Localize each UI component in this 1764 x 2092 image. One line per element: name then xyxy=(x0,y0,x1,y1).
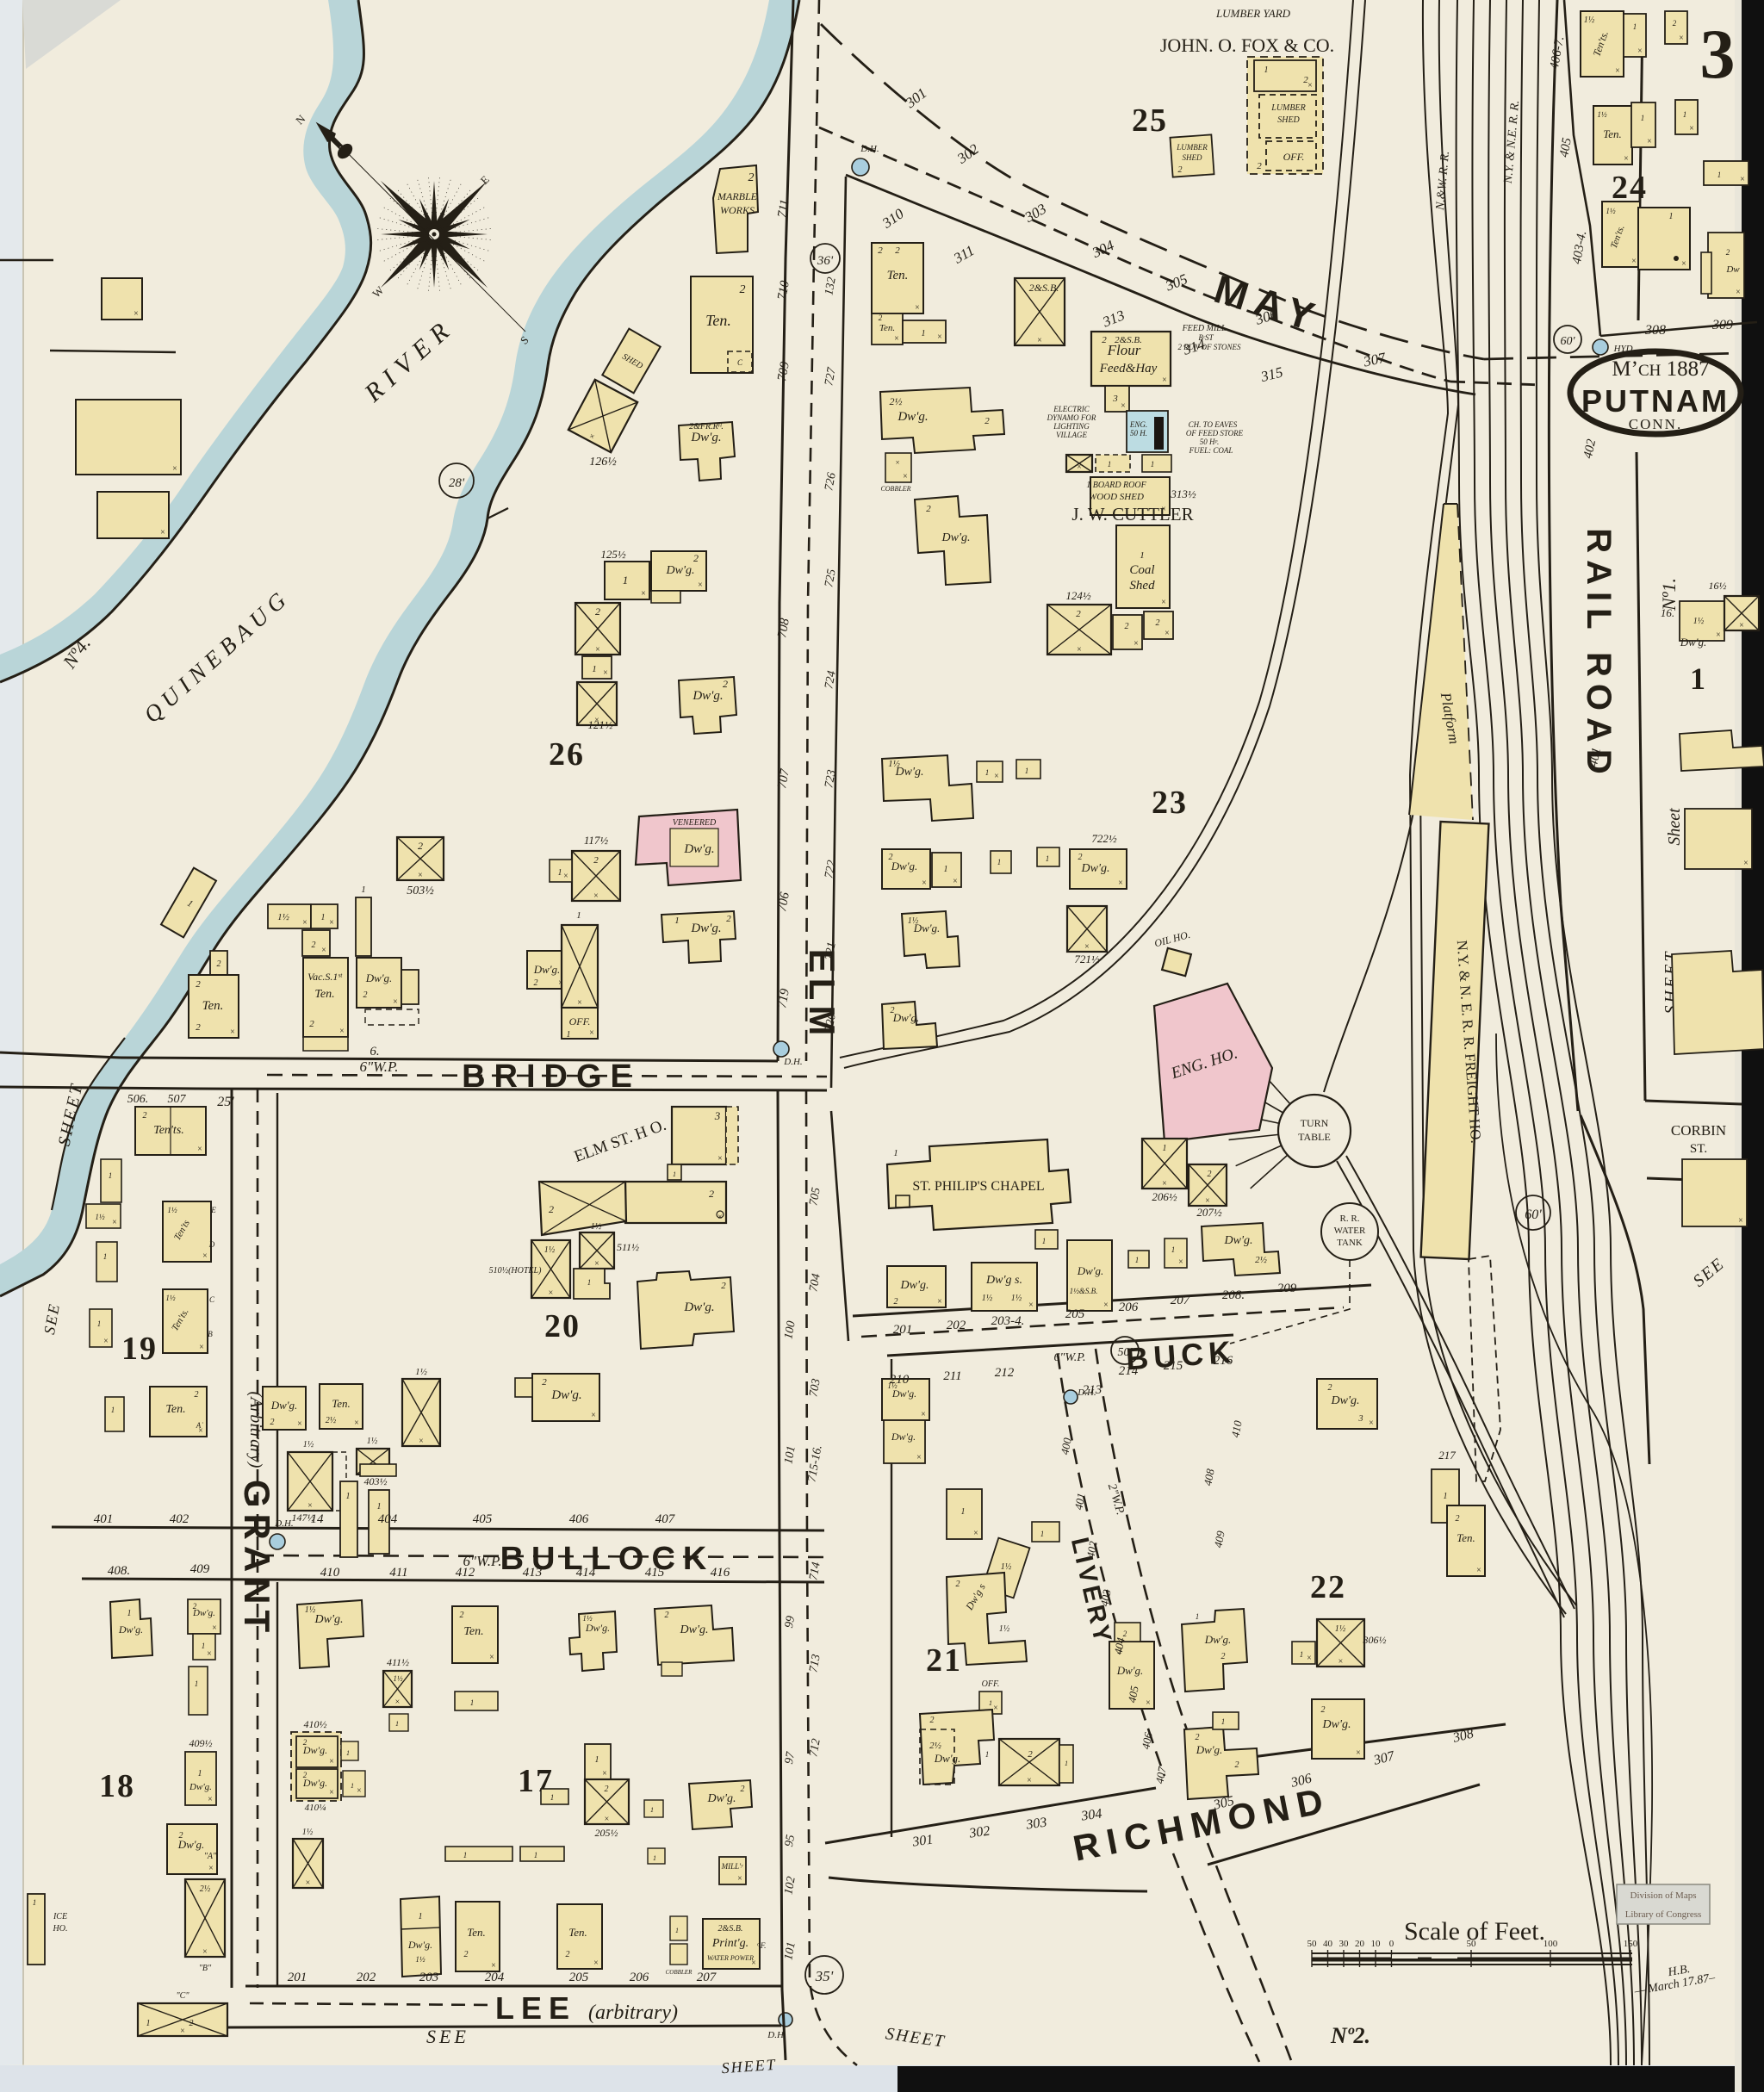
svg-text:2: 2 xyxy=(195,1390,199,1400)
svg-text:×: × xyxy=(895,458,900,467)
svg-text:1: 1 xyxy=(463,1851,468,1859)
svg-text:1: 1 xyxy=(592,664,597,674)
svg-text:×: × xyxy=(717,1154,723,1164)
svg-text:1½: 1½ xyxy=(888,759,900,769)
svg-text:×: × xyxy=(994,772,999,781)
svg-text:×: × xyxy=(1027,1776,1032,1785)
svg-text:1½: 1½ xyxy=(95,1213,105,1221)
svg-text:150: 150 xyxy=(1624,1939,1638,1949)
svg-text:Shed: Shed xyxy=(1129,579,1155,593)
svg-text:×: × xyxy=(230,1027,235,1037)
svg-text:×: × xyxy=(297,1419,302,1429)
svg-text:SEE: SEE xyxy=(426,2026,469,2047)
svg-text:2: 2 xyxy=(460,1611,464,1620)
svg-text:301: 301 xyxy=(910,1832,934,1849)
svg-text:Nº2.: Nº2. xyxy=(1330,2023,1370,2048)
svg-text:1: 1 xyxy=(395,1720,399,1728)
svg-text:21: 21 xyxy=(926,1642,962,1679)
svg-text:Ten.: Ten. xyxy=(165,1403,185,1416)
svg-text:1: 1 xyxy=(146,2019,151,2028)
svg-text:303: 303 xyxy=(1024,1815,1047,1832)
svg-text:Dw'g.: Dw'g. xyxy=(690,431,721,444)
svg-text:1: 1 xyxy=(997,858,1002,866)
svg-text:×: × xyxy=(1205,1196,1210,1206)
svg-text:MARBLE: MARBLE xyxy=(717,190,758,202)
svg-text:2: 2 xyxy=(1123,1630,1127,1638)
svg-text:721½: 721½ xyxy=(1074,953,1100,965)
svg-text:×: × xyxy=(1615,66,1620,76)
svg-text:Dw'g.: Dw'g. xyxy=(897,410,928,424)
svg-text:×: × xyxy=(595,645,600,655)
svg-text:2: 2 xyxy=(1125,622,1129,631)
svg-text:×: × xyxy=(593,891,599,901)
svg-text:BRIDGE: BRIDGE xyxy=(462,1058,641,1095)
svg-text:30: 30 xyxy=(1339,1939,1350,1949)
svg-text:×: × xyxy=(306,1878,311,1888)
svg-text:2: 2 xyxy=(926,504,931,514)
svg-text:Dw'g.: Dw'g. xyxy=(690,922,721,935)
svg-text:2: 2 xyxy=(894,1297,898,1307)
svg-text:×: × xyxy=(577,998,582,1008)
svg-text:2&S.B.: 2&S.B. xyxy=(1115,335,1142,345)
svg-text:×: × xyxy=(1118,878,1123,888)
svg-text:1½: 1½ xyxy=(1606,207,1616,215)
svg-text:SHED: SHED xyxy=(1183,153,1202,162)
svg-text:×: × xyxy=(1631,257,1637,266)
svg-text:×: × xyxy=(737,1874,742,1884)
svg-text:2: 2 xyxy=(542,1377,547,1387)
svg-text:×: × xyxy=(563,872,568,881)
svg-text:×: × xyxy=(1103,1301,1109,1310)
svg-text:2: 2 xyxy=(1221,1652,1226,1661)
svg-text:Dw'g.: Dw'g. xyxy=(1196,1743,1223,1756)
svg-text:22: 22 xyxy=(1310,1569,1346,1605)
svg-text:36': 36' xyxy=(817,254,834,268)
svg-text:50': 50' xyxy=(1118,1346,1134,1359)
svg-text:Dw'g.: Dw'g. xyxy=(1322,1718,1351,1731)
svg-text:Dw'g.: Dw'g. xyxy=(891,1431,916,1443)
svg-text:×: × xyxy=(641,589,646,599)
svg-text:1: 1 xyxy=(127,1609,132,1618)
svg-text:WORKS: WORKS xyxy=(720,204,755,216)
svg-text:410: 410 xyxy=(320,1566,340,1580)
svg-text:1½: 1½ xyxy=(367,1437,378,1446)
svg-text:Dw'g.: Dw'g. xyxy=(533,963,561,976)
svg-text:2: 2 xyxy=(595,605,600,618)
svg-text:3: 3 xyxy=(1700,15,1736,93)
svg-text:402: 402 xyxy=(170,1512,189,1526)
svg-text:DYNAMO FOR: DYNAMO FOR xyxy=(1047,413,1096,422)
svg-text:1: 1 xyxy=(1633,22,1637,31)
svg-text:414: 414 xyxy=(576,1566,596,1580)
svg-text:1½: 1½ xyxy=(167,1206,177,1214)
svg-text:Ten.: Ten. xyxy=(705,312,731,329)
svg-text:2: 2 xyxy=(1208,1170,1212,1179)
svg-text:411½: 411½ xyxy=(387,1656,409,1668)
svg-text:210: 210 xyxy=(890,1373,910,1387)
svg-text:205: 205 xyxy=(1065,1307,1085,1321)
svg-text:D.H.: D.H. xyxy=(783,1057,802,1067)
svg-text:3: 3 xyxy=(1112,394,1118,404)
svg-text:Ten.: Ten. xyxy=(568,1926,587,1939)
svg-text:Dw'g.: Dw'g. xyxy=(1331,1394,1360,1407)
svg-text:LUMBER: LUMBER xyxy=(1270,103,1305,113)
svg-text:OF FEED STORE: OF FEED STORE xyxy=(1186,429,1244,438)
svg-text:Print'g.: Print'g. xyxy=(711,1937,748,1950)
svg-text:1: 1 xyxy=(109,1171,113,1180)
svg-text:411: 411 xyxy=(389,1566,407,1580)
svg-text:40: 40 xyxy=(1323,1939,1333,1949)
svg-text:J. W. CUTTLER: J. W. CUTTLER xyxy=(1071,504,1193,525)
svg-text:125½: 125½ xyxy=(600,548,626,561)
svg-text:26: 26 xyxy=(549,736,585,773)
svg-text:1: 1 xyxy=(623,574,629,587)
svg-text:ᴼF.: ᴼF. xyxy=(757,1941,767,1950)
svg-text:2: 2 xyxy=(956,1580,960,1589)
svg-text:×: × xyxy=(922,878,927,888)
svg-text:×: × xyxy=(395,1698,401,1707)
svg-text:415: 415 xyxy=(645,1566,665,1580)
svg-text:722½: 722½ xyxy=(1091,832,1117,845)
svg-text:1: 1 xyxy=(550,1793,555,1802)
svg-text:503½: 503½ xyxy=(407,885,434,897)
svg-text:1: 1 xyxy=(1171,1245,1176,1254)
svg-text:Coal: Coal xyxy=(1129,563,1154,577)
svg-text:1½: 1½ xyxy=(1584,16,1595,25)
svg-text:1: 1 xyxy=(985,1750,990,1759)
svg-text:208.: 208. xyxy=(1222,1288,1245,1302)
svg-text:2: 2 xyxy=(748,171,755,184)
svg-text:Dw'g.: Dw'g. xyxy=(1204,1633,1232,1646)
svg-text:2: 2 xyxy=(741,1785,745,1794)
svg-text:2: 2 xyxy=(549,1203,554,1215)
svg-text:1: 1 xyxy=(1065,1760,1068,1767)
svg-text:×: × xyxy=(207,1649,212,1659)
svg-text:Dw'g.: Dw'g. xyxy=(680,1623,709,1636)
svg-text:308: 308 xyxy=(1644,323,1666,338)
svg-text:Dw'g.: Dw'g. xyxy=(683,842,714,856)
svg-text:1: 1 xyxy=(361,885,366,895)
svg-text:Dw'g.: Dw'g. xyxy=(891,860,918,872)
svg-text:"A": "A" xyxy=(204,1852,217,1861)
svg-text:2: 2 xyxy=(143,1111,147,1120)
svg-text:ST.: ST. xyxy=(1690,1142,1707,1156)
svg-text:"B": "B" xyxy=(199,1964,212,1973)
svg-text:×: × xyxy=(302,918,307,928)
svg-text:1½: 1½ xyxy=(303,1440,314,1450)
svg-text:×: × xyxy=(329,918,334,928)
svg-text:206½: 206½ xyxy=(1152,1190,1177,1203)
svg-text:ST. PHILIP'S CHAPEL: ST. PHILIP'S CHAPEL xyxy=(912,1179,1044,1194)
svg-text:1½: 1½ xyxy=(1335,1624,1346,1634)
svg-text:1: 1 xyxy=(587,1278,592,1287)
svg-text:1½: 1½ xyxy=(1597,110,1607,119)
svg-text:×: × xyxy=(602,1769,607,1779)
svg-text:1: 1 xyxy=(1135,1256,1140,1264)
svg-text:201: 201 xyxy=(893,1323,913,1337)
svg-text:217: 217 xyxy=(1438,1449,1456,1462)
svg-text:1½&S.B.: 1½&S.B. xyxy=(1070,1287,1098,1295)
svg-text:2: 2 xyxy=(534,978,538,988)
svg-text:207: 207 xyxy=(1171,1294,1191,1307)
svg-text:1: 1 xyxy=(103,1252,108,1261)
svg-text:407: 407 xyxy=(655,1512,676,1526)
svg-text:Ten.: Ten. xyxy=(314,988,334,1001)
svg-text:1½: 1½ xyxy=(277,912,289,922)
svg-text:406: 406 xyxy=(569,1512,589,1526)
svg-text:Dw'g.: Dw'g. xyxy=(1081,862,1110,875)
svg-text:TABLE: TABLE xyxy=(1298,1131,1331,1143)
svg-text:HO.: HO. xyxy=(53,1924,68,1934)
svg-text:Dw'g.: Dw'g. xyxy=(189,1782,212,1792)
svg-text:SHED: SHED xyxy=(1277,115,1300,125)
svg-text:×: × xyxy=(1339,1657,1344,1667)
svg-text:206: 206 xyxy=(630,1971,649,1984)
svg-text:×: × xyxy=(591,1411,596,1420)
svg-text:304: 304 xyxy=(1079,1806,1102,1823)
svg-text:WATER: WATER xyxy=(1334,1226,1366,1236)
svg-text:2: 2 xyxy=(693,552,699,564)
svg-text:20: 20 xyxy=(1355,1939,1365,1949)
svg-text:×: × xyxy=(329,1788,334,1797)
svg-text:2: 2 xyxy=(1456,1514,1460,1524)
svg-text:204: 204 xyxy=(485,1971,505,1984)
svg-text:×: × xyxy=(199,1343,204,1352)
svg-text:2: 2 xyxy=(665,1611,669,1620)
svg-text:×: × xyxy=(208,1864,214,1873)
svg-text:Library of Congress: Library of Congress xyxy=(1625,1909,1702,1920)
svg-text:2: 2 xyxy=(1235,1760,1239,1770)
svg-text:1: 1 xyxy=(346,1749,350,1757)
svg-text:2&FR.Rᴴ.: 2&FR.Rᴴ. xyxy=(689,422,724,431)
svg-text:0: 0 xyxy=(1389,1939,1394,1949)
svg-text:1½: 1½ xyxy=(544,1245,556,1255)
svg-text:×: × xyxy=(916,1453,922,1462)
svg-text:×: × xyxy=(903,472,908,481)
svg-text:2: 2 xyxy=(1303,75,1308,85)
svg-text:1: 1 xyxy=(1140,550,1145,561)
svg-text:1: 1 xyxy=(195,1679,199,1688)
svg-text:2: 2 xyxy=(889,853,893,862)
svg-text:16½: 16½ xyxy=(1709,580,1727,592)
svg-text:×: × xyxy=(1077,462,1082,472)
svg-text:×: × xyxy=(594,1259,599,1269)
svg-text:WATER POWER: WATER POWER xyxy=(707,1954,754,1962)
svg-text:VENEERED: VENEERED xyxy=(673,818,717,828)
svg-text:×: × xyxy=(1162,1179,1167,1189)
svg-text:1: 1 xyxy=(1683,110,1687,119)
svg-text:2: 2 xyxy=(605,1785,609,1794)
svg-text:2: 2 xyxy=(217,959,221,969)
svg-text:1: 1 xyxy=(1163,1144,1167,1153)
svg-text:2: 2 xyxy=(1673,19,1677,28)
svg-text:214: 214 xyxy=(1119,1364,1139,1378)
svg-text:1: 1 xyxy=(576,910,581,921)
svg-text:215: 215 xyxy=(1164,1359,1183,1373)
svg-text:1: 1 xyxy=(351,1782,354,1790)
svg-text:TURN: TURN xyxy=(1301,1117,1329,1129)
svg-text:LUMBER: LUMBER xyxy=(1176,143,1208,152)
svg-text:1: 1 xyxy=(1641,114,1645,122)
svg-text:2: 2 xyxy=(193,1602,197,1611)
svg-text:1½: 1½ xyxy=(415,1955,425,1964)
svg-text:ICE: ICE xyxy=(53,1912,67,1921)
svg-text:50: 50 xyxy=(1467,1939,1477,1949)
svg-text:404: 404 xyxy=(378,1512,398,1526)
svg-text:2½: 2½ xyxy=(929,1741,941,1751)
svg-text:Division of Maps: Division of Maps xyxy=(1630,1890,1697,1901)
svg-text:1: 1 xyxy=(567,1030,571,1040)
svg-text:×: × xyxy=(208,1795,213,1804)
svg-text:Ten.: Ten. xyxy=(1603,127,1622,140)
svg-text:×: × xyxy=(1084,942,1090,952)
svg-text:COBBLER: COBBLER xyxy=(880,485,910,493)
svg-text:×: × xyxy=(307,1501,313,1511)
svg-text:×: × xyxy=(1647,137,1652,146)
svg-text:×: × xyxy=(321,946,326,955)
svg-text:2&S.B.: 2&S.B. xyxy=(1029,282,1059,294)
svg-text:×: × xyxy=(1369,1418,1374,1428)
svg-text:50 Hᵖ.: 50 Hᵖ. xyxy=(1200,438,1220,446)
svg-text:×: × xyxy=(1162,376,1167,385)
svg-text:1: 1 xyxy=(1151,460,1155,469)
svg-text:2: 2 xyxy=(303,1738,307,1747)
svg-text:×: × xyxy=(202,1251,208,1261)
svg-text:2: 2 xyxy=(726,914,731,924)
svg-text:2: 2 xyxy=(1076,609,1081,619)
svg-text:201: 201 xyxy=(288,1971,307,1984)
svg-text:×: × xyxy=(202,1947,208,1957)
svg-text:E: E xyxy=(210,1206,216,1214)
svg-text:1: 1 xyxy=(1300,1650,1304,1659)
svg-text:1 BOARD ROOF: 1 BOARD ROOF xyxy=(1086,481,1146,490)
svg-text:1: 1 xyxy=(985,768,990,777)
svg-text:1: 1 xyxy=(1040,1530,1045,1538)
svg-text:OFF.: OFF. xyxy=(982,1679,1000,1689)
svg-text:×: × xyxy=(605,1815,610,1824)
svg-text:×: × xyxy=(419,1437,424,1446)
svg-text:2: 2 xyxy=(179,1831,183,1841)
svg-text:23: 23 xyxy=(1152,785,1188,821)
svg-text:1: 1 xyxy=(534,1851,538,1859)
svg-text:1: 1 xyxy=(1196,1612,1200,1621)
svg-text:1: 1 xyxy=(1042,1237,1047,1245)
svg-text:35': 35' xyxy=(815,1968,834,1984)
svg-text:2: 2 xyxy=(309,1019,314,1029)
svg-text:403½: 403½ xyxy=(364,1475,388,1487)
svg-text:6"W.P.: 6"W.P. xyxy=(360,1058,399,1075)
svg-text:203: 203 xyxy=(419,1971,439,1984)
svg-text:M’CH 1887: M’CH 1887 xyxy=(1612,357,1709,381)
svg-text:×: × xyxy=(329,1757,334,1766)
svg-text:×: × xyxy=(112,1218,117,1227)
svg-text:JOHN. O. FOX & CO.: JOHN. O. FOX & CO. xyxy=(1160,34,1334,56)
svg-text:14: 14 xyxy=(311,1512,325,1526)
svg-text:Dw'g.: Dw'g. xyxy=(314,1613,344,1626)
svg-text:207: 207 xyxy=(697,1971,717,1984)
svg-text:Vac.S.1ˢᵗ: Vac.S.1ˢᵗ xyxy=(307,971,343,983)
svg-text:1: 1 xyxy=(922,329,926,338)
svg-text:Dw'g.: Dw'g. xyxy=(666,564,695,577)
svg-text:205½: 205½ xyxy=(595,1827,618,1839)
svg-text:60': 60' xyxy=(1561,335,1576,348)
svg-text:1: 1 xyxy=(989,1699,992,1707)
svg-text:1½: 1½ xyxy=(415,1367,427,1377)
svg-text:2: 2 xyxy=(1726,248,1730,257)
svg-text:Dw'g.: Dw'g. xyxy=(1116,1664,1144,1677)
svg-text:1½: 1½ xyxy=(393,1674,403,1683)
svg-text:OFF.: OFF. xyxy=(569,1015,591,1027)
svg-text:×: × xyxy=(339,1027,345,1036)
svg-text:413: 413 xyxy=(523,1566,543,1580)
svg-text:209: 209 xyxy=(1277,1282,1297,1295)
svg-text:117½: 117½ xyxy=(584,834,609,847)
svg-text:×: × xyxy=(180,2027,185,2036)
svg-text:1: 1 xyxy=(1221,1717,1226,1726)
svg-text:×: × xyxy=(1307,1654,1312,1663)
svg-text:60': 60' xyxy=(1525,1207,1542,1222)
svg-text:6.: 6. xyxy=(370,1045,379,1058)
svg-text:FEED MILL: FEED MILL xyxy=(1182,324,1227,333)
svg-text:1: 1 xyxy=(1717,171,1722,179)
svg-text:ENG.: ENG. xyxy=(1129,420,1147,429)
svg-text:Ten.: Ten. xyxy=(332,1397,351,1410)
svg-text:1½: 1½ xyxy=(165,1294,176,1302)
svg-text:Feed&Hay: Feed&Hay xyxy=(1099,362,1158,376)
svg-text:410¼: 410¼ xyxy=(305,1803,326,1813)
svg-text:2: 2 xyxy=(1257,161,1262,171)
svg-text:Ten.: Ten. xyxy=(887,269,909,282)
svg-text:1½: 1½ xyxy=(302,1828,314,1837)
svg-text:1½: 1½ xyxy=(305,1605,316,1615)
svg-text:2: 2 xyxy=(1078,853,1083,862)
svg-text:2: 2 xyxy=(196,1022,201,1033)
svg-text:1: 1 xyxy=(674,916,680,926)
svg-text:1: 1 xyxy=(675,1927,679,1934)
svg-text:2: 2 xyxy=(196,979,201,990)
svg-text:×: × xyxy=(915,303,920,313)
svg-text:×: × xyxy=(1689,124,1694,133)
svg-text:2&S.B.: 2&S.B. xyxy=(718,1924,743,1934)
svg-text:510½(HOTEL): 510½(HOTEL) xyxy=(489,1266,543,1276)
svg-text:×: × xyxy=(354,1418,359,1428)
svg-text:28': 28' xyxy=(449,476,465,490)
svg-text:410½: 410½ xyxy=(304,1718,327,1730)
svg-text:OFF.: OFF. xyxy=(1283,151,1305,163)
svg-text:D.H.: D.H. xyxy=(274,1518,293,1529)
svg-text:C: C xyxy=(737,358,743,367)
svg-text:D: D xyxy=(208,1240,215,1249)
svg-text:VILLAGE: VILLAGE xyxy=(1056,431,1088,439)
svg-text:Dw'g.: Dw'g. xyxy=(683,1301,714,1314)
svg-text:1½: 1½ xyxy=(908,916,919,926)
svg-text:Dw'g.: Dw'g. xyxy=(550,1388,581,1402)
svg-text:2: 2 xyxy=(1156,618,1160,628)
svg-text:Dw'g.: Dw'g. xyxy=(707,1792,736,1805)
svg-text:2: 2 xyxy=(363,990,368,1000)
svg-text:20: 20 xyxy=(544,1308,581,1344)
svg-text:1½: 1½ xyxy=(582,1614,593,1623)
svg-text:2: 2 xyxy=(721,1281,726,1291)
svg-text:Dw'g.: Dw'g. xyxy=(941,531,971,544)
svg-text:2: 2 xyxy=(418,840,423,852)
svg-text:×: × xyxy=(1028,1301,1034,1310)
svg-text:1½: 1½ xyxy=(591,1222,602,1232)
svg-text:×: × xyxy=(1740,175,1745,184)
svg-text:LEE: LEE xyxy=(495,1990,576,2026)
svg-text:Ten'ts.: Ten'ts. xyxy=(153,1124,184,1137)
svg-text:×: × xyxy=(593,1959,599,1968)
